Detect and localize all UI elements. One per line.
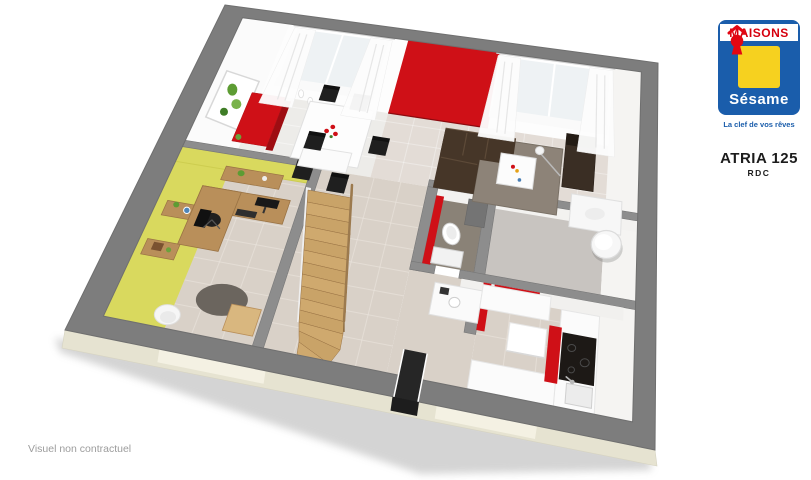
disclaimer-text: Visuel non contractuel — [28, 443, 131, 455]
floorplan-page: MAISONS Sésame La clef de vos rêves ATRI… — [0, 0, 811, 480]
maisons-sesame-logo: MAISONS Sésame — [718, 20, 800, 115]
logo-tagline: La clef de vos rêves — [716, 120, 802, 129]
floorplan-3d-render — [0, 0, 811, 480]
keyhole-icon-svg — [716, 20, 758, 62]
cellier-fixtures — [591, 230, 622, 262]
keyhole-icon — [738, 46, 780, 88]
plan-title: ATRIA 125 — [716, 150, 802, 167]
plan-subtitle: RDC — [716, 168, 802, 178]
logo-sesame-text: Sésame — [718, 91, 800, 108]
brand-block: MAISONS Sésame La clef de vos rêves ATRI… — [716, 20, 802, 178]
